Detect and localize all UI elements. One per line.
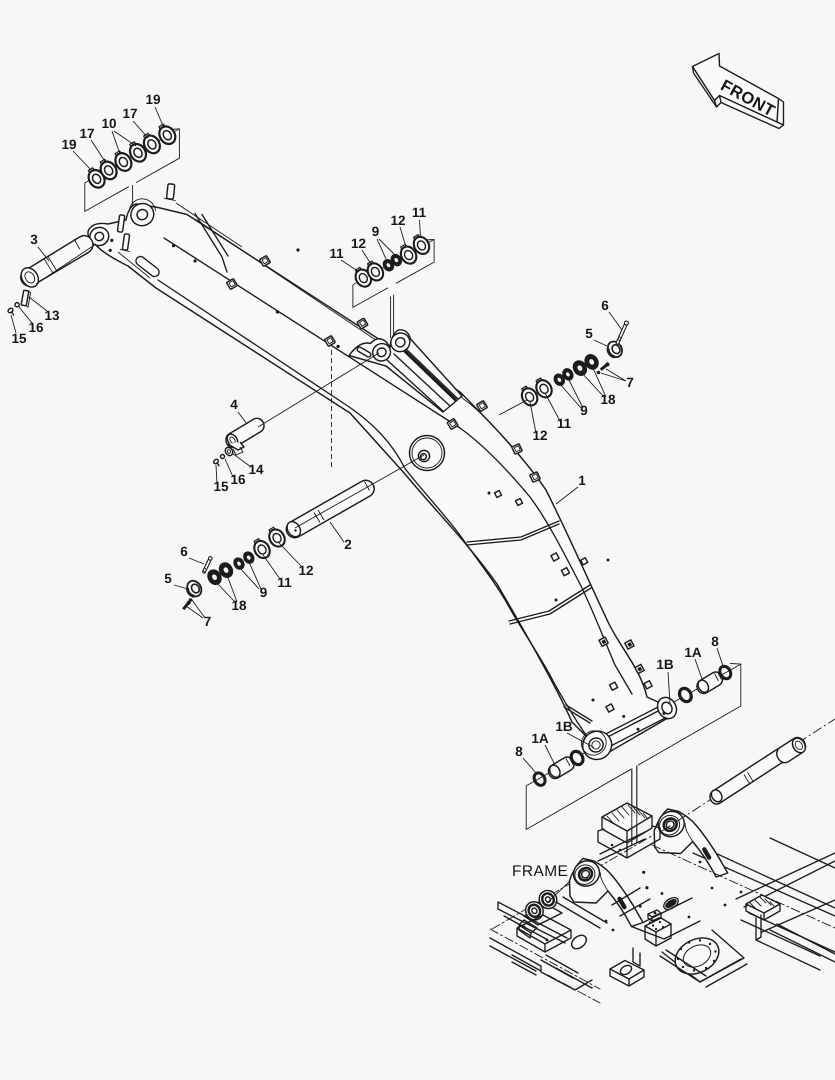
svg-text:2: 2 (344, 537, 352, 552)
svg-text:1A: 1A (531, 731, 549, 746)
svg-text:17: 17 (122, 106, 137, 121)
svg-text:16: 16 (28, 320, 44, 335)
svg-text:1A: 1A (684, 645, 702, 660)
svg-text:12: 12 (390, 213, 405, 228)
svg-text:16: 16 (230, 472, 246, 487)
svg-text:15: 15 (11, 331, 27, 346)
svg-text:5: 5 (164, 571, 172, 586)
svg-text:18: 18 (600, 392, 616, 407)
svg-text:8: 8 (515, 744, 523, 759)
svg-text:9: 9 (260, 585, 268, 600)
svg-text:6: 6 (601, 298, 609, 313)
svg-text:11: 11 (557, 416, 572, 431)
svg-text:12: 12 (532, 428, 547, 443)
svg-text:11: 11 (277, 575, 292, 590)
svg-text:11: 11 (412, 205, 427, 220)
svg-text:13: 13 (44, 308, 60, 323)
svg-text:1: 1 (578, 473, 586, 488)
svg-text:10: 10 (101, 116, 116, 131)
svg-text:11: 11 (329, 246, 344, 261)
svg-text:1B: 1B (555, 719, 573, 734)
svg-text:12: 12 (351, 236, 366, 251)
svg-text:7: 7 (204, 614, 212, 629)
svg-text:15: 15 (213, 479, 229, 494)
svg-text:7: 7 (626, 375, 634, 390)
svg-text:3: 3 (30, 232, 38, 247)
svg-text:FRAME: FRAME (512, 863, 568, 880)
svg-text:14: 14 (248, 462, 264, 477)
svg-text:19: 19 (61, 137, 76, 152)
svg-text:1B: 1B (656, 657, 674, 672)
svg-text:6: 6 (180, 544, 188, 559)
svg-text:5: 5 (585, 326, 593, 341)
svg-text:17: 17 (79, 126, 94, 141)
svg-text:19: 19 (145, 92, 160, 107)
svg-text:8: 8 (711, 634, 719, 649)
svg-text:4: 4 (230, 397, 238, 412)
svg-text:9: 9 (372, 224, 380, 239)
